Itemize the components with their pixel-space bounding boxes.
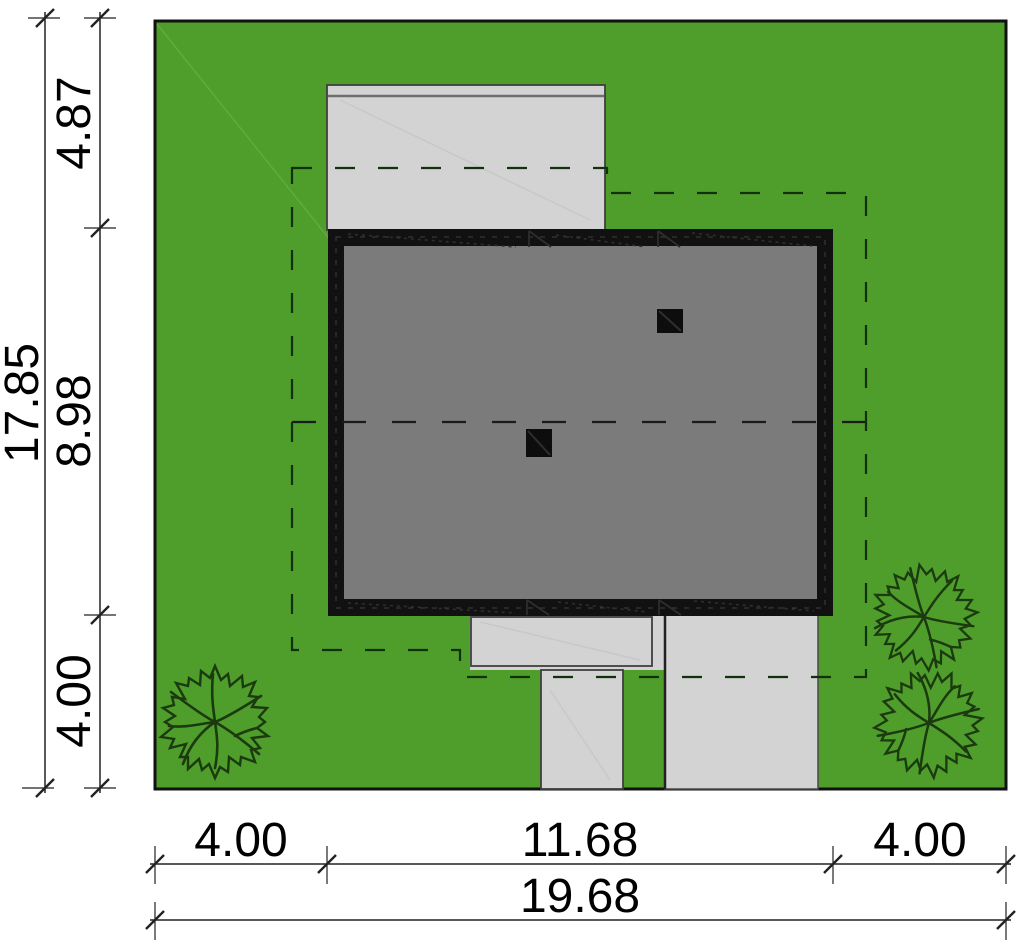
driveway-top bbox=[327, 85, 605, 230]
dim-label-house-width: 11.68 bbox=[522, 814, 639, 867]
dim-label-plot-depth-total: 17.85 bbox=[0, 343, 49, 463]
dim-label-house-depth: 8.98 bbox=[48, 374, 101, 467]
driveway-right bbox=[665, 615, 818, 789]
dim-label-left-setback: 4.00 bbox=[194, 814, 287, 867]
site-plan-drawing: 4.87 8.98 4.00 17.85 4.00 11.68 4.00 19.… bbox=[0, 0, 1020, 946]
site-plan: 4.87 8.98 4.00 17.85 4.00 11.68 4.00 19.… bbox=[0, 0, 1020, 946]
dim-label-right-setback: 4.00 bbox=[873, 814, 966, 867]
dim-label-plot-width-total: 19.68 bbox=[520, 870, 640, 923]
chimney-1 bbox=[657, 309, 683, 333]
dim-label-front-setback: 4.00 bbox=[48, 654, 101, 747]
dim-label-back-setback: 4.87 bbox=[48, 76, 101, 169]
chimney-2 bbox=[526, 429, 552, 457]
walkway bbox=[541, 670, 623, 789]
